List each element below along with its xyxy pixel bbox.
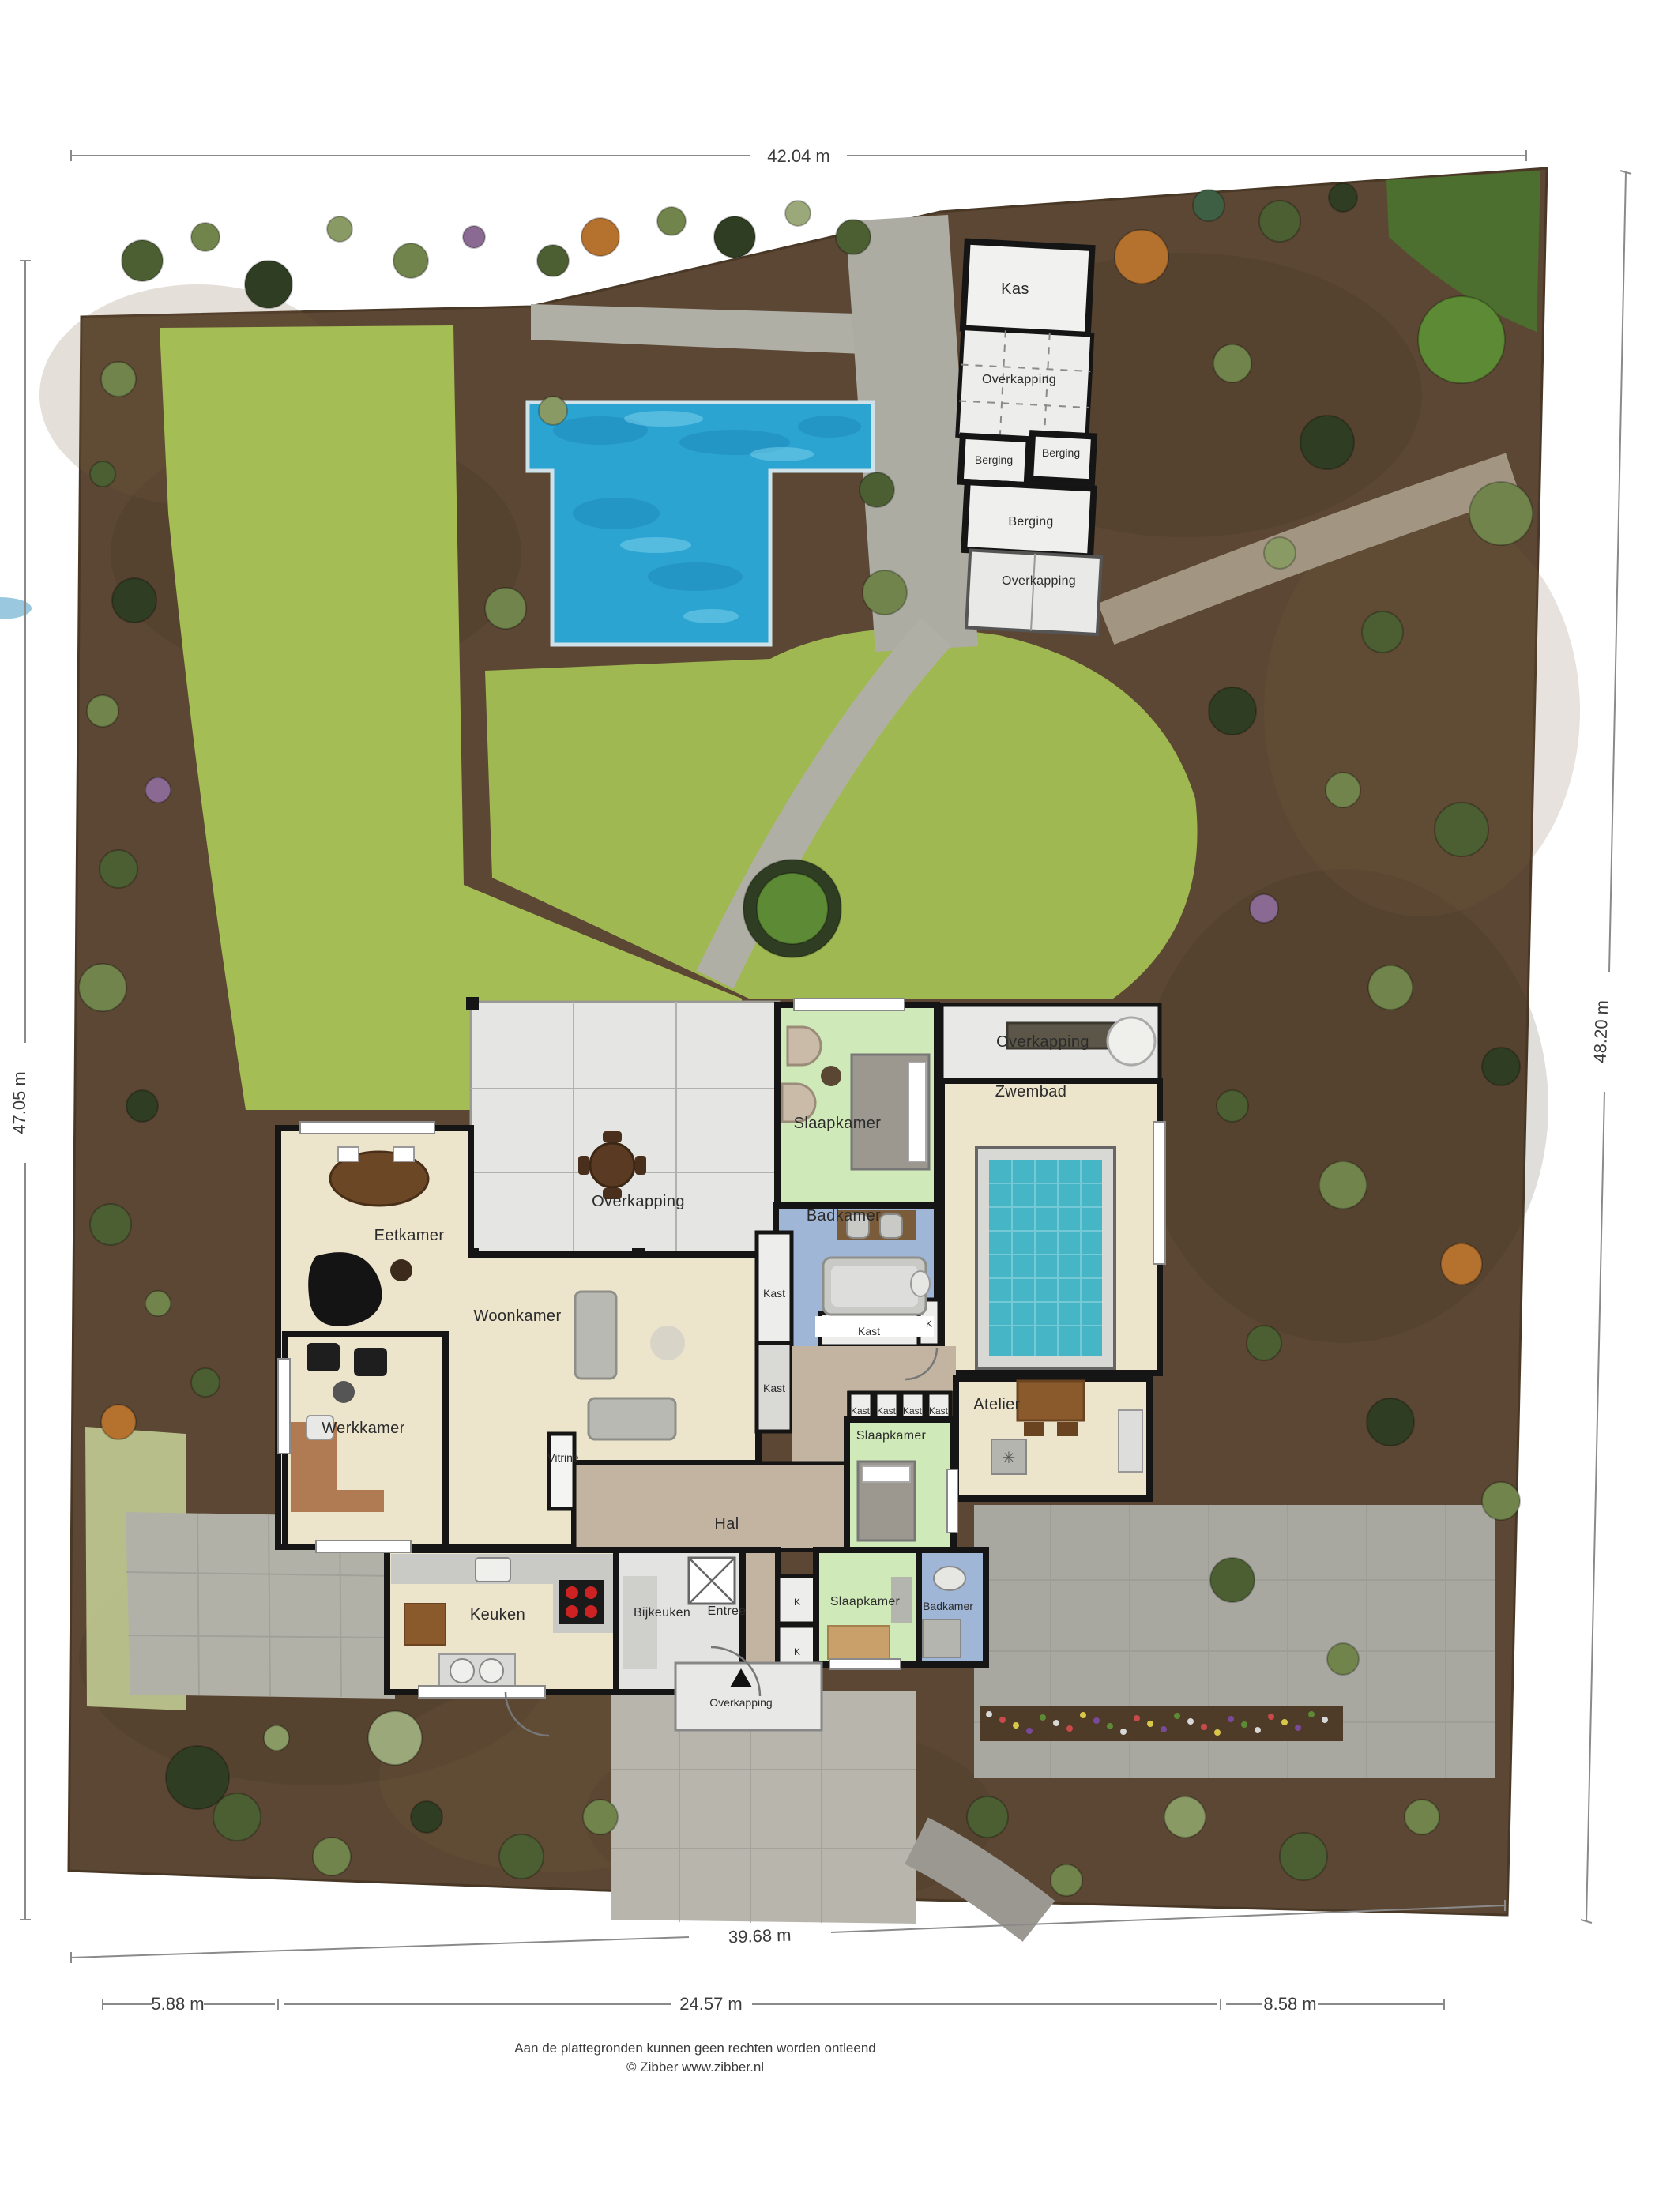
- dim-seg-2: 8.58 m: [1263, 1994, 1316, 2014]
- label-overkapping-entree: Overkapping: [709, 1696, 772, 1709]
- bush: [1326, 773, 1360, 807]
- bush: [1300, 416, 1354, 469]
- bush: [1209, 687, 1256, 735]
- label-k-3: K: [794, 1646, 800, 1657]
- flower: [986, 1711, 992, 1717]
- bush: [1250, 894, 1278, 923]
- label-eetkamer: Eetkamer: [374, 1227, 445, 1244]
- label-overkapping-pool: Overkapping: [996, 1033, 1089, 1051]
- bush: [860, 472, 894, 507]
- dim-seg-1: 24.57 m: [679, 1994, 743, 2014]
- soil-patch: [1138, 869, 1548, 1343]
- label-hal: Hal: [714, 1515, 739, 1533]
- dim-left: 47.05 m: [9, 1071, 29, 1134]
- flower: [1161, 1726, 1167, 1732]
- bush: [1259, 201, 1300, 242]
- bush: [1193, 190, 1224, 221]
- bush: [145, 777, 171, 803]
- label-berging-2: Berging: [1042, 446, 1080, 459]
- bush: [1367, 1398, 1414, 1446]
- dim-right: 48.20 m: [1590, 1000, 1612, 1063]
- label-berging-1: Berging: [975, 453, 1013, 466]
- bush: [393, 243, 428, 278]
- bush: [1327, 1643, 1359, 1675]
- label-badkamer-bot: Badkamer: [923, 1600, 973, 1612]
- label-overkapping-terras: Overkapping: [592, 1193, 685, 1210]
- flower: [1241, 1721, 1247, 1728]
- flower: [1174, 1713, 1180, 1719]
- bush: [90, 1204, 131, 1245]
- label-kast-row-0: Kast: [851, 1405, 871, 1416]
- flower-bed: [980, 1706, 1343, 1741]
- label-kast-row-3: Kast: [929, 1405, 949, 1416]
- label-overkapping-2: Overkapping: [1002, 574, 1076, 588]
- bush: [145, 1291, 171, 1316]
- flower: [1053, 1720, 1059, 1726]
- label-bijkeuken: Bijkeuken: [634, 1606, 690, 1619]
- bush: [581, 218, 619, 256]
- bush: [245, 261, 292, 308]
- bush: [1435, 803, 1488, 856]
- bush: [537, 245, 569, 276]
- bush: [87, 695, 118, 727]
- room-hal-c: [574, 1463, 847, 1550]
- flower: [1295, 1725, 1301, 1731]
- flower: [1214, 1729, 1221, 1736]
- bush: [1213, 344, 1251, 382]
- bush: [1280, 1833, 1327, 1880]
- room-hal-a: [792, 1346, 847, 1465]
- label-slaapkamer-mid: Slaapkamer: [856, 1429, 927, 1443]
- bush: [657, 207, 686, 235]
- flower: [1134, 1715, 1140, 1721]
- bush: [539, 397, 567, 425]
- flower: [1187, 1718, 1194, 1725]
- label-woonkamer: Woonkamer: [473, 1307, 561, 1325]
- bush: [100, 850, 137, 888]
- label-atelier: Atelier: [973, 1396, 1021, 1413]
- flower: [1147, 1721, 1153, 1727]
- label-kas: Kas: [1001, 280, 1029, 298]
- bush: [327, 216, 352, 242]
- bush: [368, 1711, 422, 1765]
- footer-disclaimer: Aan de plattegronden kunnen geen rechten…: [514, 2041, 875, 2056]
- label-berging-3: Berging: [1008, 515, 1053, 529]
- bush: [101, 362, 136, 397]
- bush: [79, 964, 126, 1011]
- dim-bottom: 39.68 m: [728, 1925, 792, 1947]
- room-overkapping-terras: [471, 1002, 779, 1255]
- room-vitrine: [549, 1434, 574, 1509]
- bush: [1405, 1800, 1439, 1834]
- bush: [1247, 1326, 1281, 1360]
- svg-text:✳: ✳: [1003, 1450, 1016, 1467]
- terrace-table: [590, 1143, 634, 1187]
- label-kast-row-2: Kast: [903, 1405, 923, 1416]
- bush: [1319, 1161, 1367, 1209]
- bush: [411, 1801, 442, 1833]
- flower: [1268, 1714, 1274, 1720]
- bush: [1441, 1243, 1482, 1285]
- label-kast-row-1: Kast: [877, 1405, 897, 1416]
- site-plan-page: Kas Overkapping Berging Berging Berging …: [0, 0, 1659, 2212]
- flower: [1228, 1716, 1234, 1722]
- bush: [1482, 1482, 1520, 1520]
- bush: [126, 1090, 158, 1122]
- bush: [1164, 1796, 1206, 1838]
- label-badkamer-top: Badkamer: [807, 1207, 881, 1224]
- bush: [191, 223, 220, 251]
- bush: [785, 201, 811, 226]
- flower: [1201, 1724, 1207, 1730]
- bush: [499, 1834, 544, 1879]
- label-vitrine: Vitrine: [547, 1451, 579, 1464]
- flower: [1255, 1727, 1261, 1733]
- bush: [1482, 1048, 1520, 1085]
- room-hal-b: [847, 1346, 956, 1391]
- label-kast-2: Kast: [858, 1325, 880, 1337]
- flower: [1107, 1723, 1113, 1729]
- bush: [583, 1800, 618, 1834]
- label-keuken: Keuken: [470, 1606, 525, 1623]
- label-k-2: K: [794, 1597, 800, 1608]
- label-slaapkamer-bot: Slaapkamer: [830, 1595, 901, 1608]
- bush: [101, 1405, 136, 1439]
- bush: [112, 578, 156, 623]
- bush: [1210, 1558, 1255, 1602]
- label-overkapping-1: Overkapping: [982, 373, 1056, 386]
- bush: [714, 216, 755, 258]
- flower: [1093, 1717, 1100, 1724]
- flower: [1308, 1711, 1315, 1717]
- bush: [191, 1368, 220, 1397]
- label-kast-1: Kast: [763, 1287, 785, 1300]
- bush: [166, 1746, 229, 1809]
- bush: [122, 240, 163, 281]
- flower: [1120, 1729, 1127, 1735]
- bush: [1329, 183, 1357, 212]
- bush: [836, 220, 871, 254]
- bush: [863, 570, 907, 615]
- bush: [1264, 537, 1296, 569]
- bush: [757, 873, 828, 944]
- bush: [967, 1796, 1008, 1838]
- flower: [1026, 1728, 1033, 1734]
- bush: [485, 588, 526, 629]
- flower: [1013, 1722, 1019, 1729]
- bush: [1418, 296, 1505, 383]
- bush: [1469, 482, 1533, 545]
- bush: [313, 1838, 351, 1875]
- bush: [1051, 1864, 1082, 1896]
- label-kast-3: Kast: [763, 1382, 785, 1394]
- bush: [463, 226, 485, 248]
- floorplan-canvas: Kas Overkapping Berging Berging Berging …: [0, 0, 1659, 2212]
- dim-top: 42.04 m: [767, 146, 830, 166]
- flower: [1322, 1717, 1328, 1723]
- bush: [1362, 611, 1403, 653]
- outbuildings: Kas Overkapping Berging Berging Berging …: [947, 242, 1117, 634]
- flower: [1040, 1714, 1046, 1721]
- flower: [999, 1717, 1006, 1723]
- flower: [1066, 1725, 1073, 1732]
- label-zwembad: Zwembad: [995, 1083, 1067, 1100]
- label-werkkamer: Werkkamer: [322, 1420, 404, 1437]
- bush: [1217, 1090, 1248, 1122]
- bush: [213, 1793, 261, 1841]
- label-k-1: K: [926, 1319, 932, 1330]
- bush: [1368, 965, 1413, 1010]
- footer-copyright: © Zibber www.zibber.nl: [626, 2060, 764, 2075]
- label-slaapkamer-top: Slaapkamer: [794, 1115, 882, 1132]
- flower: [1080, 1712, 1086, 1718]
- bush: [264, 1725, 289, 1751]
- dim-seg-0: 5.88 m: [151, 1994, 204, 2014]
- bush: [1115, 230, 1168, 284]
- flower: [1281, 1719, 1288, 1725]
- label-entree: Entree: [708, 1604, 747, 1618]
- bush: [90, 461, 115, 487]
